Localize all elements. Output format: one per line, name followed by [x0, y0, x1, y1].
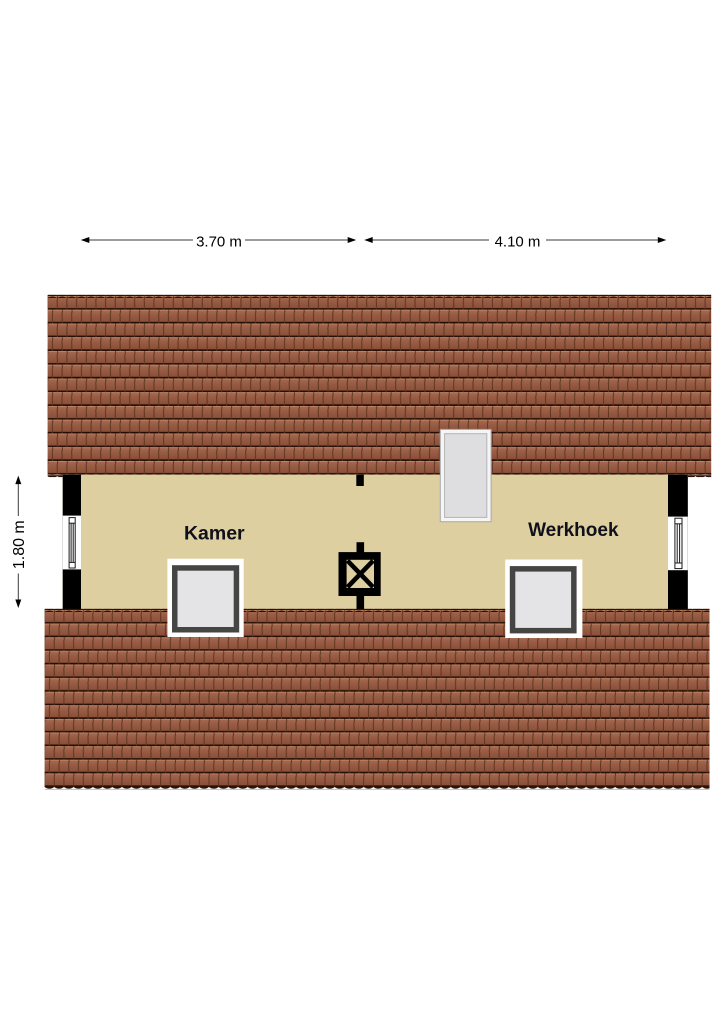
svg-text:Werkhoek: Werkhoek: [528, 520, 619, 541]
svg-text:3.70 m: 3.70 m: [196, 234, 242, 251]
svg-text:1.80 m: 1.80 m: [11, 520, 28, 569]
svg-text:4.10 m: 4.10 m: [495, 234, 541, 251]
svg-text:Kamer: Kamer: [184, 523, 245, 545]
